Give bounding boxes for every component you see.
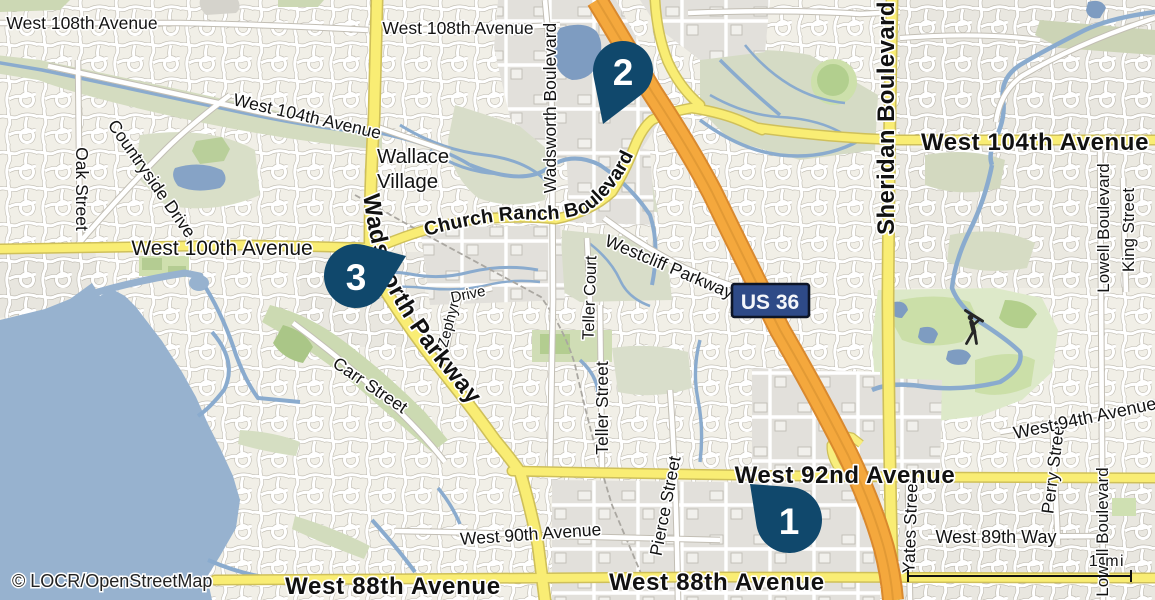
svg-text:West 104th Avenue: West 104th Avenue [921, 129, 1149, 156]
svg-text:Village: Village [377, 170, 438, 193]
svg-text:West 89th Way: West 89th Way [935, 527, 1056, 547]
svg-text:West 92nd Avenue: West 92nd Avenue [735, 462, 956, 489]
svg-text:1 mi: 1 mi [1089, 553, 1125, 570]
svg-text:Teller Court: Teller Court [580, 255, 601, 340]
svg-text:Wadsworth Boulevard: Wadsworth Boulevard [540, 23, 560, 194]
svg-text:2: 2 [613, 52, 634, 93]
svg-text:1: 1 [779, 501, 800, 542]
svg-text:Wallace: Wallace [377, 145, 449, 168]
svg-text:West 108th Avenue: West 108th Avenue [6, 13, 157, 33]
svg-text:US 36: US 36 [741, 291, 799, 314]
svg-text:3: 3 [346, 257, 367, 298]
svg-text:Lowell Boulevard: Lowell Boulevard [1093, 467, 1112, 596]
svg-text:West 88th Avenue: West 88th Avenue [609, 569, 825, 596]
svg-text:Lowell Boulevard: Lowell Boulevard [1094, 163, 1113, 292]
svg-text:King Street: King Street [1119, 188, 1138, 272]
svg-text:Sheridan Boulevard: Sheridan Boulevard [873, 1, 900, 235]
svg-text:West 100th Avenue: West 100th Avenue [131, 237, 312, 260]
svg-text:West 88th Avenue: West 88th Avenue [285, 573, 501, 600]
svg-text:West 108th Avenue: West 108th Avenue [382, 18, 533, 38]
svg-text:© LOCR/OpenStreetMap: © LOCR/OpenStreetMap [12, 571, 212, 591]
svg-text:Oak Street: Oak Street [72, 147, 92, 231]
svg-text:Yates Street: Yates Street [898, 478, 921, 574]
svg-text:Teller Street: Teller Street [592, 361, 612, 455]
